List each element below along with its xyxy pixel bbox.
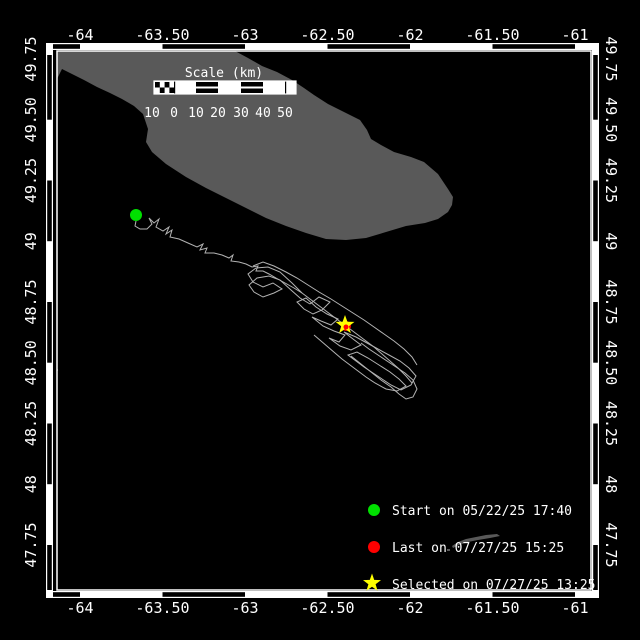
legend-green-dot-icon [368,504,380,516]
lat-tick-label: 49.50 [602,97,620,142]
tracking-map-window: -64 -63.50 -63 -62.50 -62 -61.50 -61 -64… [0,0,640,640]
scale-num: 10 [188,106,204,121]
lon-tick-label: -61 [561,599,588,617]
lon-tick-label: -62.50 [300,599,354,617]
lat-tick-label: 47.75 [22,522,40,567]
lat-tick-label: 49.25 [602,158,620,203]
lon-tick-label: -63 [231,599,258,617]
lon-tick-label: -61.50 [465,26,519,44]
lat-tick-label: 48 [602,475,620,493]
lat-axis-left: 49.7549.5049.254948.7548.5048.254847.75 [22,36,40,567]
tracking-map[interactable]: -64 -63.50 -63 -62.50 -62 -61.50 -61 -64… [0,0,640,640]
lat-tick-label: 49 [22,232,40,250]
lon-axis-bottom: -64 -63.50 -63 -62.50 -62 -61.50 -61 [66,599,588,617]
lat-tick-label: 48.75 [22,279,40,324]
lat-tick-label: 48.75 [602,279,620,324]
legend-start-label: Start on 05/22/25 17:40 [392,504,572,519]
lon-tick-label: -63.50 [135,26,189,44]
lat-tick-label: 47.75 [602,522,620,567]
legend-selected-label: Selected on 07/27/25 13:25 [392,578,596,593]
start-marker[interactable] [130,209,142,221]
lon-tick-label: -63 [231,26,258,44]
scale-num: 20 [210,106,226,121]
lon-tick-label: -64 [66,599,93,617]
lat-tick-label: 49.75 [22,36,40,81]
lat-tick-label: 48.25 [602,401,620,446]
lat-tick-label: 49.25 [22,158,40,203]
scale-num: 10 [144,106,160,121]
lat-tick-label: 49.50 [22,97,40,142]
scale-num: 0 [170,106,178,121]
lon-tick-label: -62 [396,26,423,44]
last-marker-core [344,325,349,330]
lon-tick-label: -61.50 [465,599,519,617]
lon-tick-label: -64 [66,26,93,44]
lon-tick-label: -61 [561,26,588,44]
lat-tick-label: 48.50 [22,340,40,385]
lon-axis-top: -64 -63.50 -63 -62.50 -62 -61.50 -61 [66,26,588,44]
lat-tick-label: 49 [602,232,620,250]
scale-num: 30 [233,106,249,121]
scale-num: 50 [277,106,293,121]
lat-tick-label: 48.25 [22,401,40,446]
scale-num: 40 [255,106,271,121]
lat-tick-label: 48 [22,475,40,493]
lon-tick-label: -62 [396,599,423,617]
lat-tick-label: 49.75 [602,36,620,81]
lat-tick-label: 48.50 [602,340,620,385]
lat-axis-right: 49.7549.5049.254948.7548.5048.254847.75 [602,36,620,567]
legend-red-dot-icon [368,541,380,553]
lon-tick-label: -63.50 [135,599,189,617]
lon-tick-label: -62.50 [300,26,354,44]
scale-bar-title: Scale (km) [185,66,263,81]
map-legend: Start on 05/22/25 17:40 Last on 07/27/25… [363,504,596,593]
legend-last-label: Last on 07/27/25 15:25 [392,541,564,556]
